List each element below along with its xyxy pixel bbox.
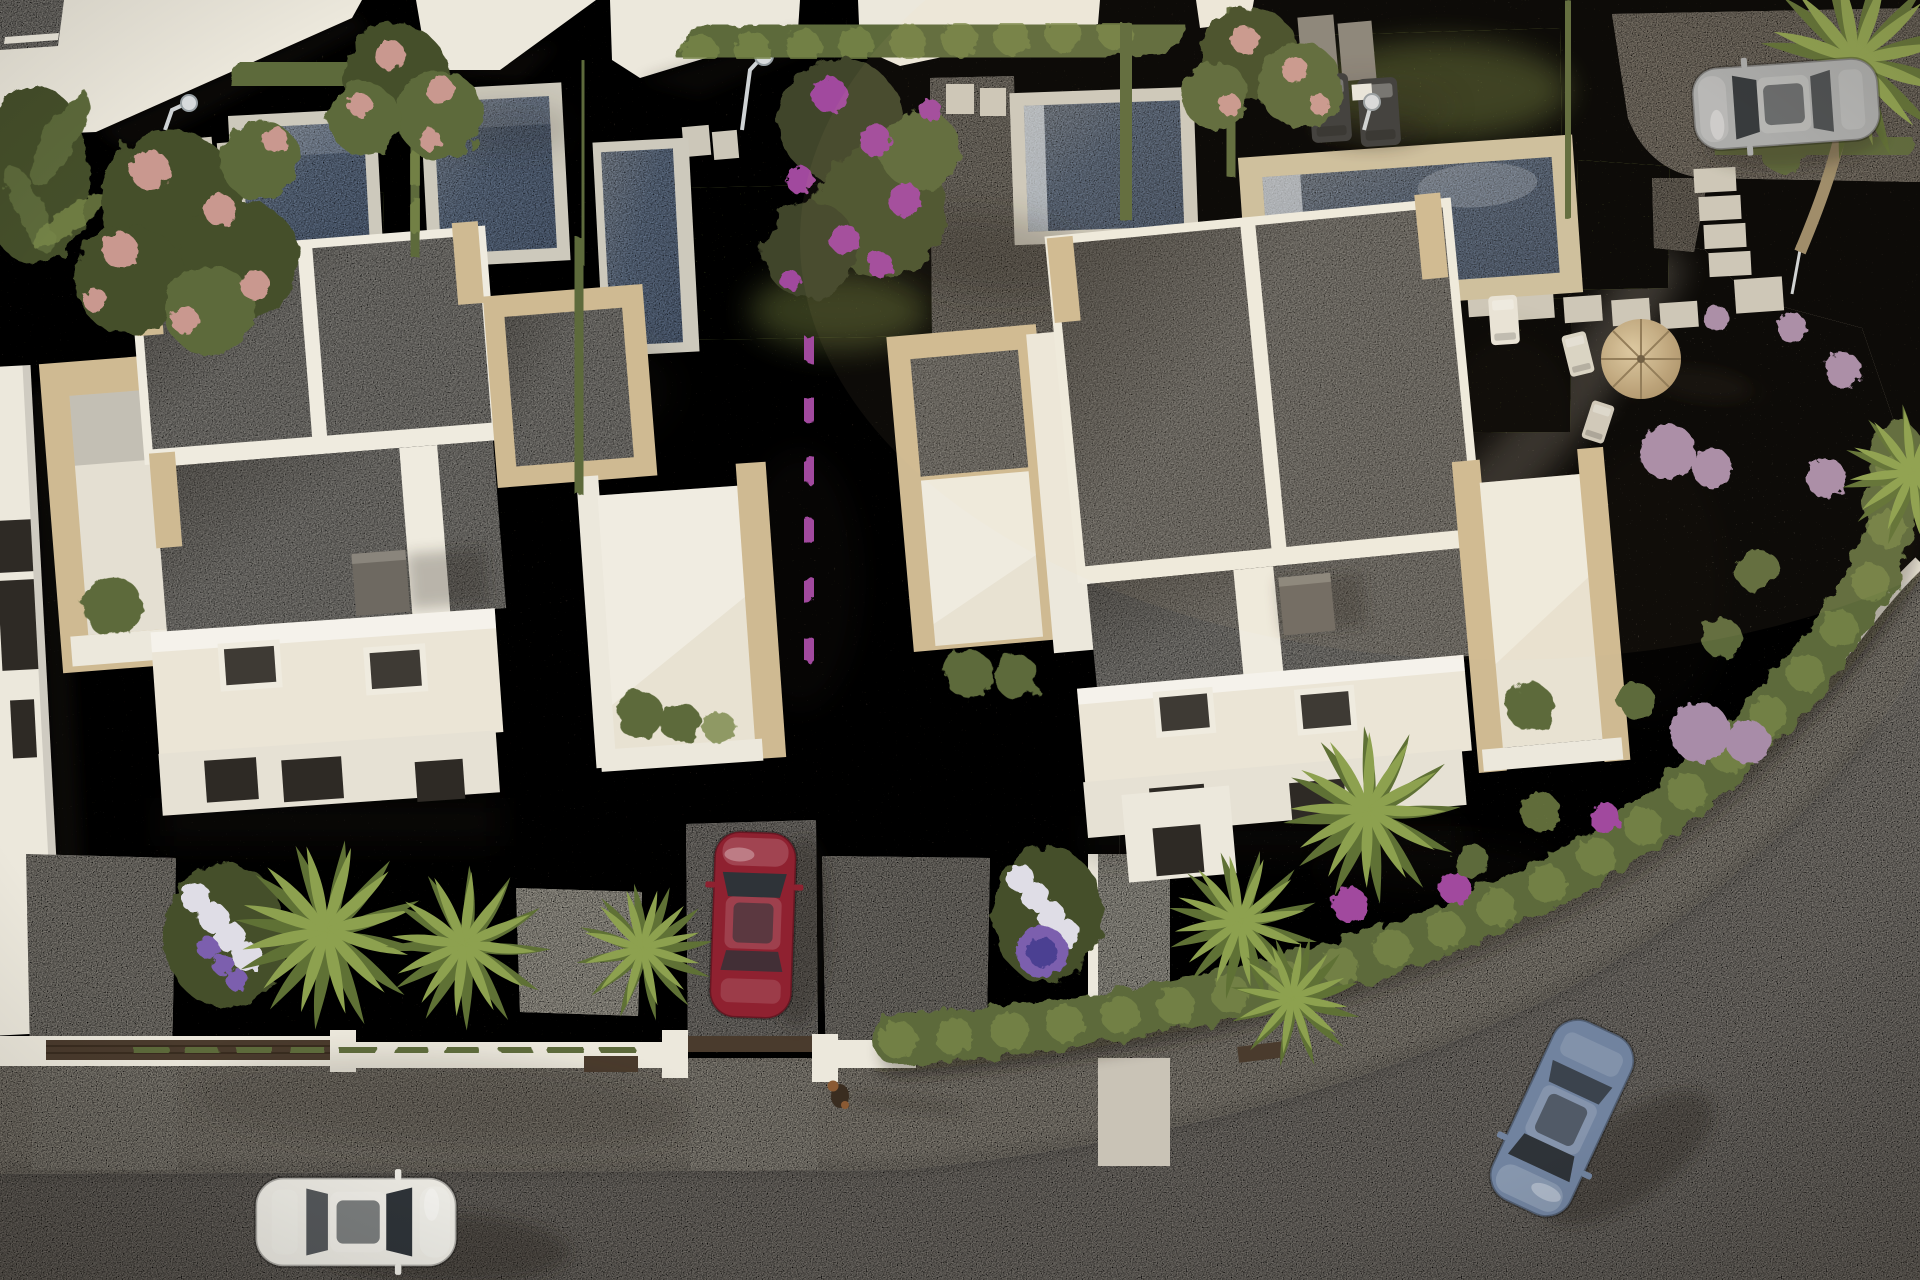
lighting-overlays — [0, 0, 1920, 1280]
aerial-render — [0, 0, 1920, 1280]
scene-canvas — [0, 0, 1920, 1280]
